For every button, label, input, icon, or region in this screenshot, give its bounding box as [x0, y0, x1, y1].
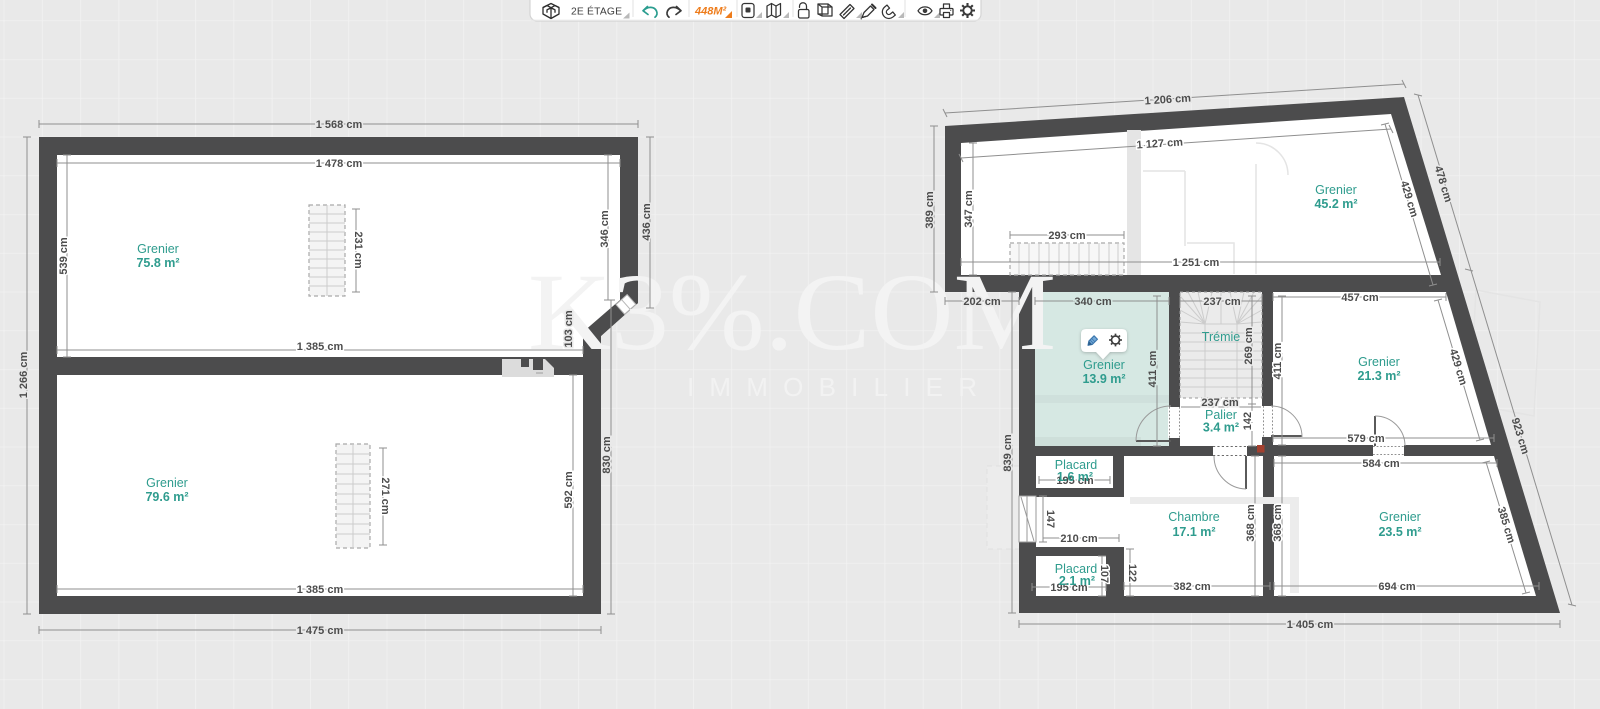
svg-text:122: 122 — [1126, 564, 1138, 582]
svg-text:107: 107 — [1098, 565, 1110, 583]
svg-text:340 cm: 340 cm — [1074, 296, 1112, 308]
svg-text:231 cm: 231 cm — [352, 231, 364, 269]
svg-text:75.8 m²: 75.8 m² — [136, 256, 179, 270]
svg-text:147: 147 — [1044, 510, 1056, 528]
svg-text:271 cm: 271 cm — [379, 477, 391, 515]
svg-text:Grenier: Grenier — [137, 242, 179, 256]
svg-text:448M²: 448M² — [694, 6, 727, 18]
svg-text:1 568 cm: 1 568 cm — [316, 119, 363, 131]
svg-text:411 cm: 411 cm — [1272, 342, 1284, 379]
svg-text:103 cm: 103 cm — [563, 310, 575, 348]
svg-text:2E ÉTAGE: 2E ÉTAGE — [571, 5, 622, 18]
svg-text:1.6 m²: 1.6 m² — [1057, 470, 1093, 484]
svg-text:1 266 cm: 1 266 cm — [18, 352, 30, 399]
svg-text:1 251 cm: 1 251 cm — [1173, 257, 1220, 269]
svg-text:839 cm: 839 cm — [1002, 434, 1014, 472]
svg-text:346 cm: 346 cm — [599, 210, 611, 248]
svg-text:Grenier: Grenier — [1315, 183, 1357, 197]
svg-text:17.1 m²: 17.1 m² — [1172, 525, 1215, 539]
svg-text:45.2 m²: 45.2 m² — [1314, 197, 1357, 211]
svg-text:142: 142 — [1242, 412, 1254, 430]
svg-text:237 cm: 237 cm — [1203, 296, 1241, 308]
svg-text:579 cm: 579 cm — [1347, 433, 1385, 445]
svg-text:Grenier: Grenier — [1379, 510, 1421, 524]
svg-text:830 cm: 830 cm — [601, 436, 613, 474]
svg-text:347 cm: 347 cm — [963, 190, 975, 228]
svg-text:79.6 m²: 79.6 m² — [145, 490, 188, 504]
svg-text:382 cm: 382 cm — [1173, 581, 1211, 593]
svg-text:Grenier: Grenier — [1358, 355, 1400, 369]
svg-text:1 385 cm: 1 385 cm — [297, 584, 344, 596]
svg-text:584 cm: 584 cm — [1362, 458, 1400, 470]
svg-text:202 cm: 202 cm — [963, 296, 1001, 308]
svg-text:23.5 m²: 23.5 m² — [1378, 525, 1421, 539]
svg-text:1 405 cm: 1 405 cm — [1287, 619, 1334, 631]
svg-text:539 cm: 539 cm — [58, 237, 70, 275]
svg-text:13.9 m²: 13.9 m² — [1082, 372, 1125, 386]
svg-text:368 cm: 368 cm — [1272, 504, 1284, 542]
svg-text:3.4 m²: 3.4 m² — [1203, 421, 1239, 435]
svg-text:IMMOBILIER: IMMOBILIER — [687, 372, 977, 402]
svg-text:457 cm: 457 cm — [1341, 292, 1379, 304]
svg-text:2.1 m²: 2.1 m² — [1059, 574, 1095, 588]
svg-text:411 cm: 411 cm — [1147, 350, 1159, 387]
svg-text:436 cm: 436 cm — [641, 203, 653, 241]
svg-text:1 475 cm: 1 475 cm — [297, 625, 344, 637]
svg-text:293 cm: 293 cm — [1048, 230, 1086, 242]
svg-text:21.3 m²: 21.3 m² — [1357, 369, 1400, 383]
svg-text:694 cm: 694 cm — [1378, 581, 1416, 593]
svg-text:Trémie: Trémie — [1202, 330, 1240, 344]
svg-text:K3%.COM: K3%.COM — [528, 251, 1056, 373]
svg-text:592 cm: 592 cm — [563, 471, 575, 509]
svg-text:1 385 cm: 1 385 cm — [297, 341, 344, 353]
svg-text:368 cm: 368 cm — [1245, 504, 1257, 542]
svg-text:210 cm: 210 cm — [1060, 533, 1098, 545]
svg-text:Chambre: Chambre — [1168, 510, 1219, 524]
svg-text:389 cm: 389 cm — [924, 191, 936, 229]
svg-text:269 cm: 269 cm — [1243, 327, 1255, 365]
svg-text:Grenier: Grenier — [146, 476, 188, 490]
svg-text:1 478 cm: 1 478 cm — [316, 158, 363, 170]
svg-text:Grenier: Grenier — [1083, 358, 1125, 372]
